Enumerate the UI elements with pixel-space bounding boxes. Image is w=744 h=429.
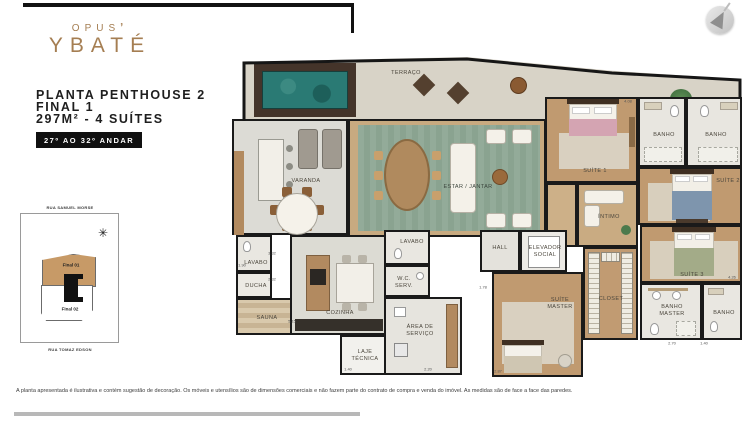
dimension-label: 2.87 xyxy=(494,369,502,374)
room-label: ÍNTIMO xyxy=(598,214,620,220)
unit-final-01-label: Final 01 xyxy=(63,263,80,268)
room-closet: CLOSET xyxy=(583,247,638,340)
bed-blanket xyxy=(504,356,542,373)
room-label: DUCHA xyxy=(245,283,267,289)
street-name-top: RUA SAMUEL MORSE xyxy=(14,205,126,210)
toilet xyxy=(243,241,251,252)
room-label: COZINHA xyxy=(326,310,354,316)
room-elevador-social: ELEVADOR SOCIAL xyxy=(520,230,567,272)
dining-chair xyxy=(432,151,441,160)
dimension-label: 1.78 xyxy=(479,285,487,290)
wardrobe xyxy=(621,252,633,334)
dimension-label: 5.15 xyxy=(288,319,296,324)
room-label: SUÍTE 1 xyxy=(583,168,607,174)
top-border-line xyxy=(23,3,354,7)
sink xyxy=(652,291,661,300)
pillow xyxy=(572,107,590,114)
compass-stem xyxy=(723,2,730,11)
room-label: LAVABO xyxy=(400,239,424,245)
pool xyxy=(262,71,348,109)
bed-blanket xyxy=(672,191,712,220)
wall-cabinet xyxy=(234,151,244,235)
dining-chair xyxy=(432,191,441,200)
room-label: LAVABO xyxy=(244,260,268,266)
sink xyxy=(672,291,681,300)
room-sauna: SAUNA xyxy=(236,298,294,335)
washer xyxy=(394,343,408,357)
building-core-shape xyxy=(64,274,78,302)
key-plan-box: ✳ Final 01 Final 02 xyxy=(20,213,119,343)
unit-final-02-label: Final 02 xyxy=(62,307,79,312)
room-label: HALL xyxy=(492,245,507,251)
room-estar-jantar: ESTAR / JANTAR xyxy=(348,119,546,237)
toilet xyxy=(394,248,402,259)
bottom-border-line xyxy=(14,412,360,416)
sofa xyxy=(584,190,624,204)
room-label: SUÍTE 2 xyxy=(716,178,740,184)
room-label: BANHO MASTER xyxy=(658,304,686,318)
dimension-label: 2.70 xyxy=(668,341,676,346)
location-key-plan: RUA SAMUEL MORSE ✳ Final 01 Final 02 RUA… xyxy=(14,205,126,352)
dimension-label: 1.90 xyxy=(238,263,246,268)
sink-counter xyxy=(644,102,662,110)
street-name-bottom: RUA TOMAZ EDSON xyxy=(14,347,126,352)
tv-dresser xyxy=(676,219,708,223)
pillow xyxy=(695,234,710,240)
pillow xyxy=(594,107,612,114)
counter xyxy=(295,319,383,331)
floor-plan: TERRAÇO VARANDA xyxy=(232,57,742,383)
disclaimer-text: A planta apresentada é ilustrativa e con… xyxy=(16,388,584,396)
room-label: BANHO xyxy=(705,132,727,138)
room-label: BANHO xyxy=(653,132,675,138)
brochure-page: OPUSʼ YBATÉ PLANTA PENTHOUSE 2 FINAL 1 2… xyxy=(0,0,744,429)
kitchen-island xyxy=(258,139,284,201)
compass-needle-icon xyxy=(710,9,730,30)
parasol-table xyxy=(510,77,527,94)
dimension-label: 1.40 xyxy=(344,367,352,372)
room-label: SUÍTE MASTER xyxy=(545,297,575,311)
room-label: ÁREA DE SERVIÇO xyxy=(403,324,437,338)
shower xyxy=(698,147,738,162)
desk xyxy=(629,117,635,147)
room-label: SUÍTE 3 xyxy=(680,272,704,278)
room-intimo: ÍNTIMO xyxy=(577,183,638,247)
room-label: BANHO xyxy=(713,310,735,316)
room-label: ESTAR / JANTAR xyxy=(443,184,492,190)
pillow xyxy=(675,176,690,182)
room-suite-master: SUÍTE MASTER xyxy=(492,272,583,377)
lounge-chair xyxy=(322,129,342,169)
sofa xyxy=(450,143,476,213)
round-dining-table xyxy=(276,193,318,235)
dimension-label: 2.20 xyxy=(424,367,432,372)
room-area-servico: ÁREA DE SERVIÇO xyxy=(384,297,462,375)
room-label: W.C. SERV. xyxy=(393,276,415,290)
room-label: TERRAÇO xyxy=(391,70,421,76)
room-label: ELEVADOR SOCIAL xyxy=(528,245,562,259)
compass-icon xyxy=(706,6,734,34)
laundry-sink xyxy=(394,307,406,317)
sink-counter xyxy=(648,288,688,291)
lounge-chair xyxy=(298,129,318,169)
armchair xyxy=(558,354,572,368)
armchair xyxy=(512,213,532,228)
room-label: SAUNA xyxy=(257,315,278,321)
toilet xyxy=(650,323,659,335)
dimension-label: 2.32 xyxy=(268,277,276,282)
toilet xyxy=(670,105,679,117)
dining-chair xyxy=(374,191,383,200)
room-label: CLOSET xyxy=(599,296,623,302)
room-ducha: DUCHA xyxy=(236,272,272,298)
toilet xyxy=(700,105,709,117)
chair xyxy=(358,303,367,311)
room-label: VARANDA xyxy=(292,178,321,184)
room-banho-2: BANHO xyxy=(686,97,742,167)
top-border-corner xyxy=(351,7,354,33)
dimension-label: 1.40 xyxy=(700,341,708,346)
logo-mark: ʼ xyxy=(120,22,128,34)
logo-main-text: YBATÉ xyxy=(40,34,160,58)
shower xyxy=(644,147,682,162)
wardrobe xyxy=(601,252,620,262)
sink-counter xyxy=(708,288,724,295)
room-hall: HALL xyxy=(480,230,520,272)
toilet xyxy=(710,321,718,332)
brand-logo: OPUSʼ YBATÉ xyxy=(40,22,160,58)
room-suite-1: SUÍTE 1 xyxy=(545,97,638,183)
room-label: LAJE TÉCNICA xyxy=(350,349,380,363)
room-suite-2: SUÍTE 2 xyxy=(638,167,742,225)
wardrobe xyxy=(588,252,600,334)
chair xyxy=(358,255,367,263)
dimension-label: 3.32 xyxy=(268,251,276,256)
oval-dining-table xyxy=(384,139,430,211)
stool xyxy=(286,163,293,170)
armchair xyxy=(486,129,506,144)
plant xyxy=(621,225,631,235)
rug xyxy=(559,133,629,169)
dimension-label: 4.08 xyxy=(624,99,632,104)
kitchen-table xyxy=(336,263,374,303)
room-banho-3: BANHO xyxy=(702,283,742,340)
room-banho-master: BANHO MASTER xyxy=(640,283,702,340)
room-suite-3: SUÍTE 3 xyxy=(640,225,742,283)
dining-chair xyxy=(432,171,441,180)
terrace-lounger xyxy=(447,82,470,105)
dining-chair xyxy=(374,151,383,160)
room-wc-serv: W.C. SERV. xyxy=(384,265,430,297)
logo-top-text: OPUSʼ xyxy=(40,22,160,34)
stool xyxy=(286,145,293,152)
pillow xyxy=(677,234,692,240)
room-lavabo: LAVABO xyxy=(384,230,430,265)
round-chair xyxy=(492,169,508,185)
room-banho-1: BANHO xyxy=(638,97,686,167)
sink-counter xyxy=(720,102,738,110)
terrace-lounger xyxy=(413,74,436,97)
north-star-icon: ✳ xyxy=(98,226,108,240)
armchair xyxy=(512,129,532,144)
room-cozinha: COZINHA xyxy=(290,235,386,335)
pillow xyxy=(693,176,708,182)
title-line-3: 297M² - 4 SUÍTES xyxy=(36,114,206,126)
bed-blanket xyxy=(569,119,617,136)
cooktop xyxy=(310,269,326,285)
dimension-label: 4.26 xyxy=(728,275,736,280)
sink xyxy=(416,272,424,280)
room-varanda: VARANDA xyxy=(232,119,348,235)
chair xyxy=(342,255,351,263)
dining-chair xyxy=(374,171,383,180)
service-counter xyxy=(446,304,458,368)
plan-title-block: PLANTA PENTHOUSE 2 FINAL 1 297M² - 4 SUÍ… xyxy=(36,90,206,148)
floor-range-badge: 27º AO 32º ANDAR xyxy=(36,132,142,148)
armchair xyxy=(486,213,506,228)
shower xyxy=(676,321,696,336)
